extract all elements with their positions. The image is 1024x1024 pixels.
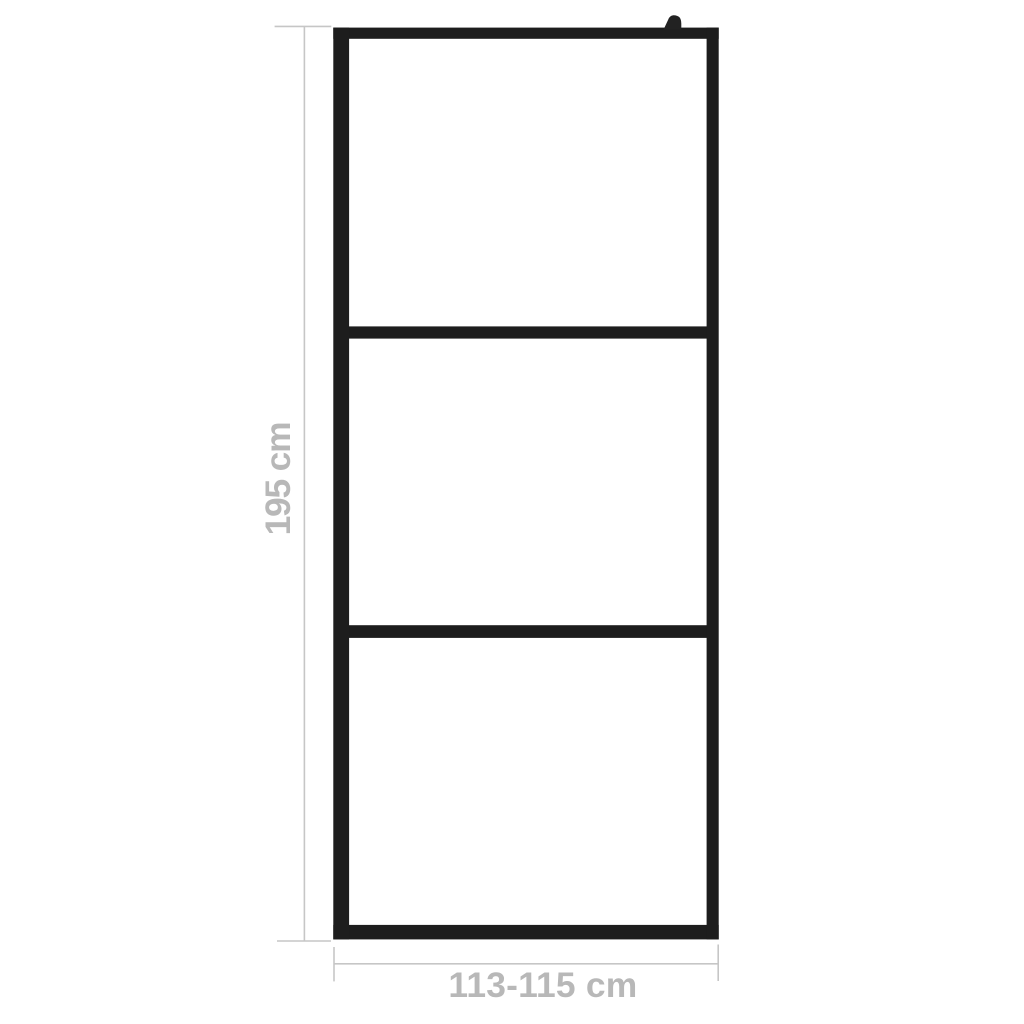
svg-text:113-115 cm: 113-115 cm [448,965,637,1005]
svg-text:195 cm: 195 cm [258,423,298,536]
